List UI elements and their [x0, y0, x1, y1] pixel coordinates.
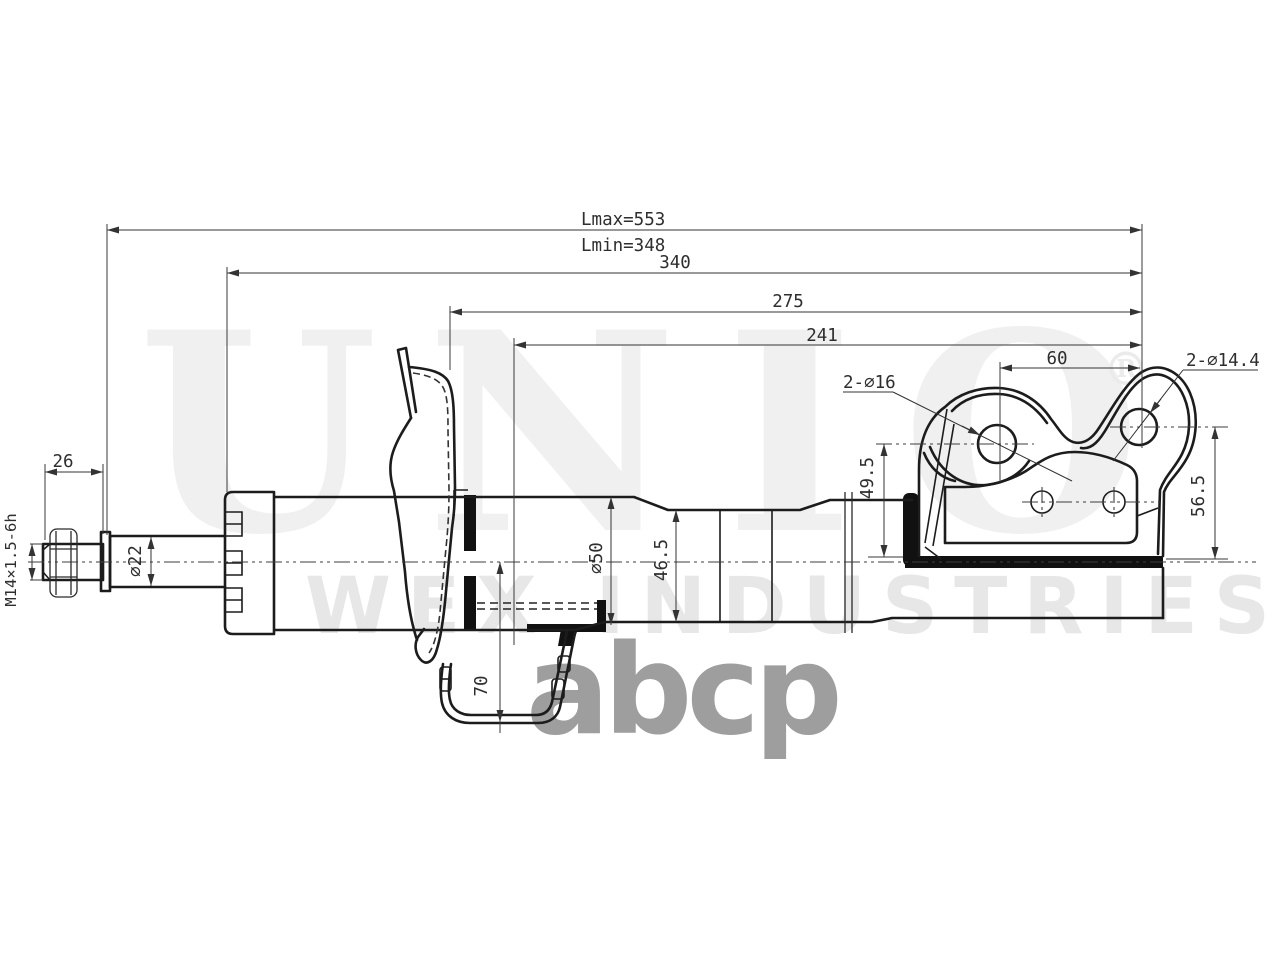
label-56-5: 56.5: [1189, 475, 1209, 517]
drawing-canvas: UNIO ® WEX INDUSTRIES abcp: [0, 0, 1280, 960]
label-275: 275: [772, 292, 804, 312]
label-49-5: 49.5: [858, 457, 878, 499]
label-60: 60: [1046, 349, 1067, 369]
bracket-weld-seam: [903, 493, 919, 566]
label-340: 340: [659, 253, 691, 273]
label-lmax: Lmax=553: [581, 210, 665, 230]
seat-weld-upper: [464, 495, 476, 551]
label-241: 241: [806, 326, 838, 346]
watermarks: UNIO ® WEX INDUSTRIES abcp: [138, 272, 1280, 763]
phantom-nut: [50, 529, 77, 597]
label-holes-lower: 2-∅14.4: [1186, 351, 1260, 371]
label-lmin: Lmin=348: [581, 236, 665, 256]
label-26: 26: [52, 452, 73, 472]
label-thread: M14×1.5-6h: [2, 513, 20, 606]
technical-drawing: UNIO ® WEX INDUSTRIES abcp: [0, 0, 1280, 960]
label-dia22: ∅22: [126, 545, 146, 577]
label-46-5: 46.5: [652, 539, 672, 581]
label-holes-upper: 2-∅16: [843, 373, 896, 393]
label-dia50: ∅50: [587, 542, 607, 574]
label-70: 70: [472, 675, 492, 696]
seat-weld-lower: [464, 576, 476, 629]
